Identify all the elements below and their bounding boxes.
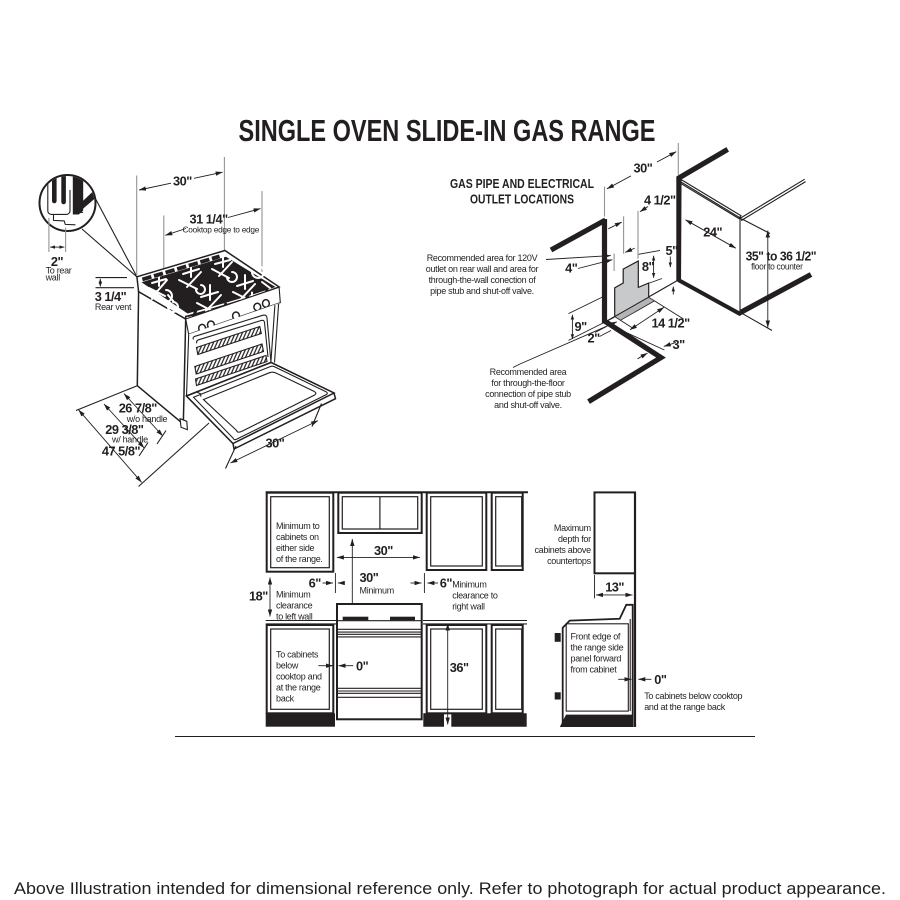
svg-text:cooktop and: cooktop and [276,672,322,682]
svg-text:SINGLE OVEN SLIDE-IN GAS RANGE: SINGLE OVEN SLIDE-IN GAS RANGE [239,113,656,148]
svg-text:depth for: depth for [558,534,591,544]
svg-text:connection of pipe stub: connection of pipe stub [485,389,571,399]
svg-text:floor to counter: floor to counter [751,262,803,272]
svg-text:30": 30" [173,174,192,189]
svg-text:14 1/2": 14 1/2" [652,316,691,331]
svg-text:Recommended area: Recommended area [490,367,567,377]
svg-text:4 1/2": 4 1/2" [644,193,676,208]
svg-text:13": 13" [605,580,624,595]
svg-text:To cabinets below cooktop: To cabinets below cooktop [644,691,742,701]
svg-text:right wall: right wall [452,602,485,612]
svg-text:back: back [276,694,295,704]
svg-text:panel forward: panel forward [571,654,622,664]
svg-text:0": 0" [356,659,369,674]
svg-text:and at the range back: and at the range back [644,702,726,712]
svg-text:Minimum: Minimum [276,590,310,600]
svg-text:for through-the-floor: for through-the-floor [491,378,565,388]
svg-text:Front edge of: Front edge of [571,632,621,642]
svg-text:Rear vent: Rear vent [95,302,132,312]
svg-text:of the range.: of the range. [276,554,323,564]
svg-text:cabinets above: cabinets above [534,545,591,555]
svg-text:6": 6" [440,576,453,591]
svg-text:3": 3" [673,337,686,352]
svg-text:through-the-wall conection of: through-the-wall conection of [429,275,537,285]
svg-text:30": 30" [634,161,653,176]
svg-text:24": 24" [703,225,722,240]
svg-text:Cooktop edge to edge: Cooktop edge to edge [183,224,260,234]
svg-text:at the range: at the range [276,683,321,693]
svg-text:Maximum: Maximum [554,523,591,533]
svg-text:To cabinets: To cabinets [276,650,319,660]
svg-text:4": 4" [565,261,578,276]
svg-text:Minimum to: Minimum to [276,521,320,531]
svg-text:Minimum: Minimum [452,580,486,590]
svg-text:the range side: the range side [571,643,624,653]
svg-text:36": 36" [450,660,469,675]
svg-text:0": 0" [654,672,667,687]
svg-text:5": 5" [666,243,679,258]
svg-text:countertops: countertops [547,556,592,566]
svg-text:OUTLET LOCATIONS: OUTLET LOCATIONS [470,193,574,207]
svg-text:below: below [276,661,299,671]
svg-text:Minimum: Minimum [360,586,394,596]
svg-text:8": 8" [642,259,655,274]
svg-text:pipe stub and shut-off valve.: pipe stub and shut-off valve. [430,286,534,296]
svg-text:clearance to: clearance to [452,591,498,601]
svg-text:47 5/8": 47 5/8" [102,444,141,459]
svg-text:9": 9" [575,319,588,334]
svg-text:wall: wall [45,273,61,283]
svg-text:18": 18" [249,589,268,604]
svg-text:either side: either side [276,543,315,553]
svg-text:30": 30" [374,543,393,558]
svg-text:from cabinet: from cabinet [571,665,618,675]
svg-text:GAS PIPE AND ELECTRICAL: GAS PIPE AND ELECTRICAL [450,177,594,191]
svg-text:cabinets on: cabinets on [276,532,319,542]
svg-text:6": 6" [309,576,322,591]
svg-text:30": 30" [266,436,285,451]
svg-text:outlet on rear wall and area f: outlet on rear wall and area for [426,264,539,274]
svg-text:clearance: clearance [276,601,313,611]
svg-text:Recommended area for 120V: Recommended area for 120V [427,253,538,263]
svg-text:2": 2" [588,331,601,346]
svg-text:30": 30" [360,570,379,585]
svg-text:and shut-off valve.: and shut-off valve. [494,400,562,410]
svg-text:Above Illustration intended fo: Above Illustration intended for dimensio… [14,879,886,898]
